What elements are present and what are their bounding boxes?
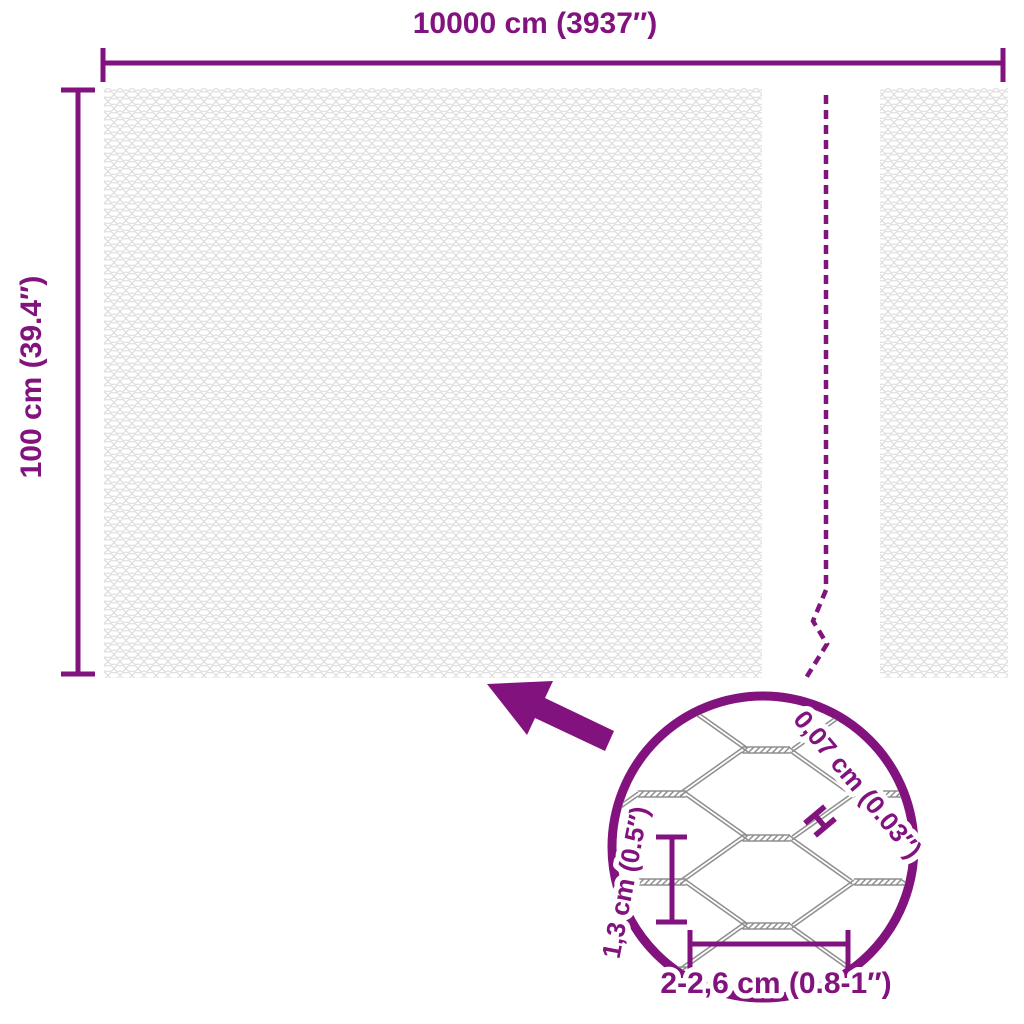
break-line [806, 95, 827, 678]
zoom-arrow-icon [487, 681, 614, 751]
mesh-width-label: 2-2,6 cm (0.8-1″) [660, 967, 891, 1000]
magnifier-detail: 0,07 cm (0.03″) 1,3 cm (0.5″) 2-2,6 cm (… [576, 659, 964, 1000]
wire-segment [902, 708, 964, 752]
height-dimension-label: 100 cm (39.4″) [15, 276, 48, 479]
width-dimension-label: 10000 cm (3937″) [413, 7, 658, 40]
wire-twist [638, 703, 686, 709]
wire-twist [854, 703, 902, 709]
mesh-panel-right [880, 88, 1008, 678]
magnifier-circle [612, 696, 914, 998]
product-dimension-diagram: 10000 cm (3937″) 100 cm (39.4″) [0, 0, 1024, 1024]
mesh-panel-left [104, 88, 762, 678]
wire-segment [902, 704, 964, 748]
left-height-dimension: 100 cm (39.4″) [15, 90, 95, 674]
top-width-dimension: 10000 cm (3937″) [103, 7, 1003, 82]
diagram-svg: 10000 cm (3937″) 100 cm (39.4″) [0, 0, 1024, 1024]
